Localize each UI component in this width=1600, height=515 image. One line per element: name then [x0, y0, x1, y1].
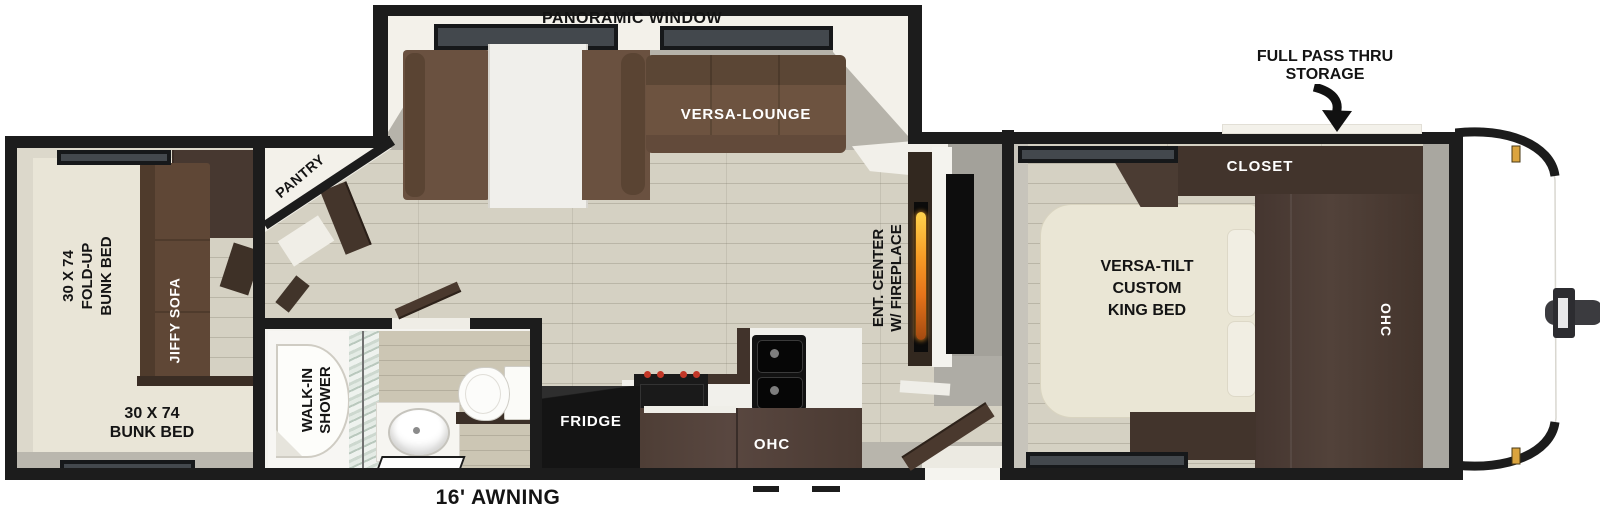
wall-front — [1449, 132, 1463, 480]
wall-bathroom-right — [530, 318, 542, 480]
bunk-furniture-edge — [137, 376, 253, 386]
bunk-bed-label: 30 X 74 BUNK BED — [77, 404, 227, 442]
awning-bracket-left — [753, 486, 779, 492]
jiffy-sofa-back — [140, 163, 155, 379]
stove-knob-4 — [693, 371, 700, 378]
stove-knob-1 — [644, 371, 651, 378]
ent-center-label: ENT. CENTER W/ FIREPLACE — [870, 199, 906, 357]
bedroom-ohc-seam — [1290, 194, 1292, 472]
stove-knob-3 — [680, 371, 687, 378]
bedroom-window-top — [1018, 146, 1178, 163]
fireplace-flame — [916, 212, 926, 340]
shower-door-rail — [362, 331, 364, 468]
panoramic-window-right — [660, 26, 833, 50]
stove-knob-2 — [657, 371, 664, 378]
bedroom-wall-shade-left — [1014, 144, 1028, 468]
sink-bowl-top — [757, 340, 803, 373]
kitchen-ohc-label: OHC — [722, 436, 822, 453]
fridge-label: FRIDGE — [547, 413, 635, 430]
versa-lounge-back — [646, 55, 846, 85]
marker-light-bottom — [1512, 448, 1520, 464]
bunkroom-wall-shade-left — [17, 148, 33, 458]
awning-label: 16' AWNING — [408, 486, 588, 510]
versa-lounge-label: VERSA-LOUNGE — [648, 106, 844, 123]
front-cap-body — [1455, 133, 1556, 465]
sink-bowl-bottom — [757, 377, 803, 409]
wall-bathroom-top-left — [253, 318, 392, 329]
bedroom-wall-shade-right — [1423, 144, 1451, 468]
foldup-bunk-label: 30 X 74 FOLD-UP BUNK BED — [59, 226, 117, 326]
counter-divider-horizontal — [704, 374, 750, 384]
sink-drain-top — [770, 349, 779, 358]
entry-door-threshold — [925, 468, 1000, 480]
wall-top-left — [5, 136, 390, 148]
walk-in-shower-label: WALK-IN SHOWER — [299, 344, 337, 456]
wall-bunkroom-divider — [253, 136, 265, 480]
jiffy-sofa-label: JIFFY SOFA — [167, 261, 182, 381]
bedroom-window-bottom — [1026, 452, 1188, 469]
wall-slideout-right — [908, 5, 922, 144]
storage-arrow-icon — [1300, 84, 1364, 134]
sink-drain — [413, 427, 420, 434]
sink-drain-bottom — [770, 386, 779, 395]
toilet-seat-line — [465, 374, 501, 414]
full-pass-thru-label: FULL PASS THRU STORAGE — [1225, 48, 1425, 84]
bedroom-ohc-cabinet — [1255, 194, 1423, 472]
awning-bracket-right — [812, 486, 840, 492]
marker-light-top — [1512, 146, 1520, 162]
closet-label: CLOSET — [1190, 158, 1330, 175]
lounge-table — [488, 44, 588, 208]
bathroom-door-threshold — [392, 318, 470, 329]
bunkroom-window-top — [57, 150, 171, 165]
tv-panel — [946, 174, 974, 354]
rv-floorplan: VERSA-LOUNGE 30 X 74 FOLD-UP BUNK BED JI… — [0, 0, 1600, 515]
kitchen-counter-edge — [644, 406, 736, 413]
wall-bedroom-partition — [1002, 130, 1014, 480]
bedroom-ohc-label: OHC — [1378, 285, 1394, 355]
lounge-armrest-mid — [621, 53, 645, 195]
wall-bottom-left-segment — [5, 468, 925, 480]
wall-slideout-left — [373, 5, 388, 148]
front-cap — [1455, 118, 1600, 488]
wall-rear — [5, 136, 17, 480]
shower-glass-door — [349, 331, 379, 468]
king-bed-label: VERSA-TILT CUSTOM KING BED — [1062, 256, 1232, 322]
wall-bottom-right-segment — [1000, 468, 1463, 480]
hitch-slot — [1558, 298, 1568, 328]
bed-pillow-bottom — [1227, 321, 1256, 397]
lounge-armrest-left — [405, 53, 425, 197]
versa-lounge-front — [646, 135, 846, 153]
panoramic-window-label: PANORAMIC WINDOW — [452, 10, 812, 28]
